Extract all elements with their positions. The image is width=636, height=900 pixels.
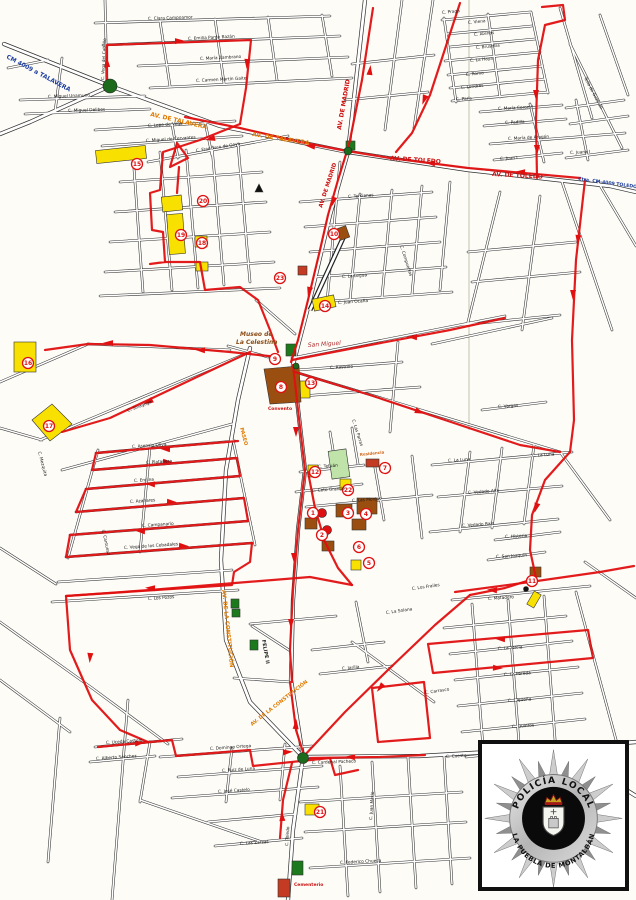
svg-text:20: 20 [199, 198, 207, 205]
route-marker-14[interactable]: 14 [320, 301, 331, 312]
route-marker-17[interactable]: 17 [44, 421, 55, 432]
building [161, 195, 182, 212]
route-marker-13[interactable]: 13 [306, 378, 317, 389]
route-marker-1[interactable]: 1 [308, 508, 319, 519]
roundabout-icon [103, 79, 117, 93]
svg-text:23: 23 [276, 275, 284, 282]
building [366, 459, 379, 467]
svg-text:21: 21 [316, 809, 324, 816]
route-marker-9[interactable]: 9 [270, 354, 281, 365]
route-marker-23[interactable]: 23 [275, 273, 286, 284]
building [231, 599, 239, 608]
svg-text:2: 2 [320, 532, 324, 539]
route-marker-20[interactable]: 20 [198, 196, 209, 207]
route-marker-18[interactable]: 18 [197, 238, 208, 249]
building [298, 266, 307, 275]
svg-text:1: 1 [311, 510, 315, 517]
roundabout-icon [344, 147, 352, 155]
svg-text:3: 3 [346, 510, 350, 517]
svg-text:18: 18 [198, 240, 206, 247]
route-marker-2[interactable]: 2 [317, 530, 328, 541]
route-marker-19[interactable]: 19 [176, 230, 187, 241]
roundabout-icon [293, 363, 299, 369]
svg-text:16: 16 [24, 360, 32, 367]
route-marker-21[interactable]: 21 [315, 807, 326, 818]
roundabout-icon [298, 753, 309, 764]
badge-shield-icon [543, 807, 564, 836]
building [351, 560, 361, 570]
map-page: 1234567891011121314151617181920212223CM … [0, 0, 636, 900]
svg-text:17: 17 [45, 423, 53, 430]
svg-text:15: 15 [133, 161, 141, 168]
route-marker-7[interactable]: 7 [380, 463, 391, 474]
svg-text:9: 9 [273, 356, 277, 363]
svg-text:19: 19 [177, 232, 185, 239]
building [305, 518, 317, 529]
route-marker-10[interactable]: 10 [329, 229, 340, 240]
building [292, 861, 303, 875]
svg-text:4: 4 [364, 511, 368, 518]
svg-text:14: 14 [321, 303, 329, 310]
building [278, 879, 290, 897]
police-badge-emblem: POLICÍA LOCAL LA PUEBLA DE MONTALBÁN [482, 744, 625, 887]
svg-text:11: 11 [528, 578, 536, 585]
svg-text:13: 13 [307, 380, 315, 387]
svg-text:6: 6 [357, 544, 361, 551]
route-marker-16[interactable]: 16 [23, 358, 34, 369]
route-marker-8[interactable]: 8 [276, 382, 287, 393]
route-marker-15[interactable]: 15 [132, 159, 143, 170]
route-marker-4[interactable]: 4 [361, 509, 372, 520]
route-marker-5[interactable]: 5 [364, 558, 375, 569]
building [232, 609, 240, 617]
svg-text:7: 7 [383, 465, 387, 472]
building [352, 519, 366, 530]
svg-text:12: 12 [311, 469, 319, 476]
building [250, 640, 258, 650]
route-marker-12[interactable]: 12 [310, 467, 321, 478]
route-marker-6[interactable]: 6 [354, 542, 365, 553]
route-marker-22[interactable]: 22 [343, 485, 354, 496]
svg-text:5: 5 [367, 560, 371, 567]
svg-text:22: 22 [344, 487, 352, 494]
police-badge: POLICÍA LOCAL LA PUEBLA DE MONTALBÁN [478, 740, 629, 891]
svg-text:10: 10 [330, 231, 338, 238]
route-marker-11[interactable]: 11 [527, 576, 538, 587]
svg-text:8: 8 [279, 384, 283, 391]
route-marker-3[interactable]: 3 [343, 508, 354, 519]
building [328, 449, 350, 479]
roundabout-icon [524, 587, 529, 592]
